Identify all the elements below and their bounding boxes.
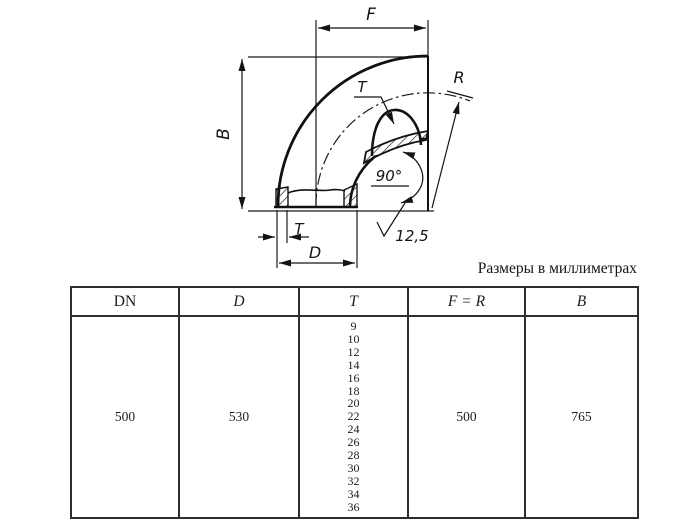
angle-dim-arc	[401, 152, 423, 203]
label-t-section: T	[357, 78, 368, 96]
label-f: F	[366, 5, 376, 25]
t-value: 36	[300, 501, 407, 514]
cell-f-r: 500	[408, 316, 525, 518]
t-value: 10	[300, 333, 407, 346]
cell-t-values: 9 10 12 14 16 18 20 22 24 26 28 30 32 34…	[299, 316, 408, 518]
label-b: B	[214, 128, 234, 140]
header-row: DN D T F = R B	[71, 287, 638, 316]
label-angle: 90°	[376, 167, 403, 185]
col-header-b: B	[525, 287, 638, 316]
right-wall-section	[344, 184, 357, 207]
dimensions-table: DN D T F = R B 500 530 9 10 12 14 16 18 …	[70, 286, 639, 519]
t-value: 14	[300, 359, 407, 372]
table-caption: Размеры в миллиметрах	[70, 260, 637, 278]
col-header-d: D	[179, 287, 299, 316]
left-wall-section	[276, 187, 288, 207]
cell-dn: 500	[71, 316, 179, 518]
col-header-dn: DN	[71, 287, 179, 316]
cell-d: 530	[179, 316, 299, 518]
label-roughness: 12,5	[395, 227, 428, 245]
t-value: 16	[300, 372, 407, 385]
cell-b: 765	[525, 316, 638, 518]
label-t-wall: T	[294, 220, 305, 238]
table-row: 500 530 9 10 12 14 16 18 20 22 24 26 28 …	[71, 316, 638, 518]
t-value: 12	[300, 346, 407, 359]
col-header-t: T	[299, 287, 408, 316]
t-value: 34	[300, 488, 407, 501]
t-value: 9	[300, 320, 407, 333]
radius-leader	[432, 102, 459, 208]
t-value: 30	[300, 462, 407, 475]
col-header-f-r: F = R	[408, 287, 525, 316]
label-r: R	[453, 68, 464, 87]
elbow-drawing: F B R T 90° 12,5 T D	[0, 0, 700, 272]
page: F B R T 90° 12,5 T D Размеры в миллиметр…	[0, 0, 700, 525]
t-value: 32	[300, 475, 407, 488]
